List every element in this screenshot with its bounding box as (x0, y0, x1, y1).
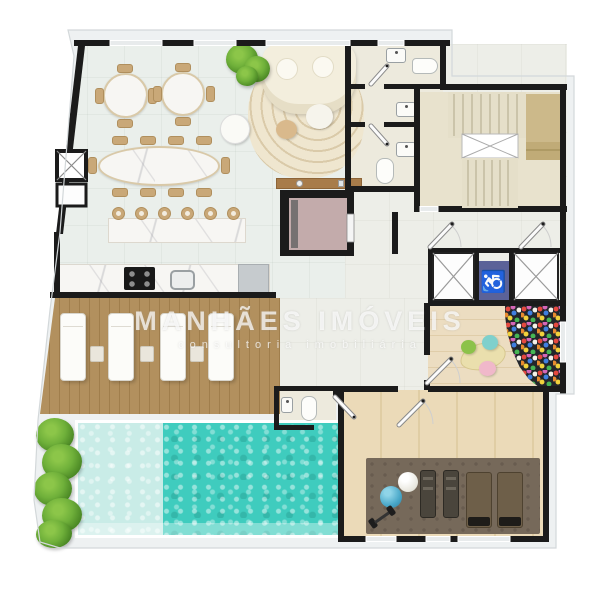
accessible-elevator-cell: ♿ (479, 261, 510, 302)
deck-side-table (140, 346, 154, 362)
deck-side-table (90, 346, 104, 362)
console-decor (296, 180, 303, 187)
wc-sink (281, 397, 293, 413)
sofa-cushion (312, 56, 334, 78)
wc-sink (386, 48, 406, 63)
round-table (103, 73, 148, 118)
console-decor (338, 180, 344, 187)
chair (117, 64, 133, 73)
exercise-ball-white (398, 472, 418, 492)
shrub-icon (36, 520, 72, 548)
play-pouf-pink (479, 361, 496, 376)
sun-lounger (60, 313, 86, 381)
oval-dining-table (98, 146, 220, 186)
toilet (376, 158, 394, 184)
toilet (301, 396, 317, 421)
chair (196, 188, 212, 197)
chair (140, 136, 156, 145)
chair (117, 119, 133, 128)
sun-lounger (208, 313, 234, 381)
wc-sink (396, 102, 416, 117)
kitchen-sink (170, 270, 195, 290)
cooktop (124, 267, 155, 290)
pouf-beige (276, 120, 297, 139)
wc-sink (396, 142, 416, 157)
chair (140, 188, 156, 197)
dumbbell (367, 503, 398, 531)
gym-bench (497, 472, 523, 528)
gym-machine (443, 470, 459, 518)
chair (88, 157, 97, 174)
round-table (161, 72, 205, 116)
sofa (262, 44, 356, 114)
plant-icon (236, 66, 258, 86)
play-pouf-teal (482, 335, 498, 350)
bar-stool (204, 207, 217, 220)
coffee-table (220, 114, 250, 144)
furniture-layer: ♿ (0, 0, 600, 600)
chair (112, 188, 128, 197)
console-sideboard (276, 178, 362, 189)
sofa-cushion (276, 58, 298, 80)
chair (175, 117, 191, 126)
chair (168, 188, 184, 197)
floor-plan: ♿ (0, 0, 600, 600)
gym-machine (420, 470, 436, 518)
chair (112, 136, 128, 145)
bar-stool (227, 207, 240, 220)
chair (95, 88, 104, 104)
chair (175, 63, 191, 72)
gym-bench (466, 472, 492, 528)
chair (221, 157, 230, 174)
chair (153, 86, 162, 102)
chair (196, 136, 212, 145)
sun-lounger (108, 313, 134, 381)
deck-side-table (190, 346, 204, 362)
bar-stool (112, 207, 125, 220)
toilet (412, 58, 438, 74)
wheelchair-icon: ♿ (484, 268, 505, 294)
pouf-white (306, 104, 333, 129)
bar-stool (135, 207, 148, 220)
bar-counter (108, 218, 246, 243)
bar-stool (158, 207, 171, 220)
sun-lounger (160, 313, 186, 381)
chair (168, 136, 184, 145)
bar-stool (181, 207, 194, 220)
chair (206, 86, 215, 102)
play-pouf-green (461, 340, 476, 354)
dishwasher (238, 264, 269, 293)
